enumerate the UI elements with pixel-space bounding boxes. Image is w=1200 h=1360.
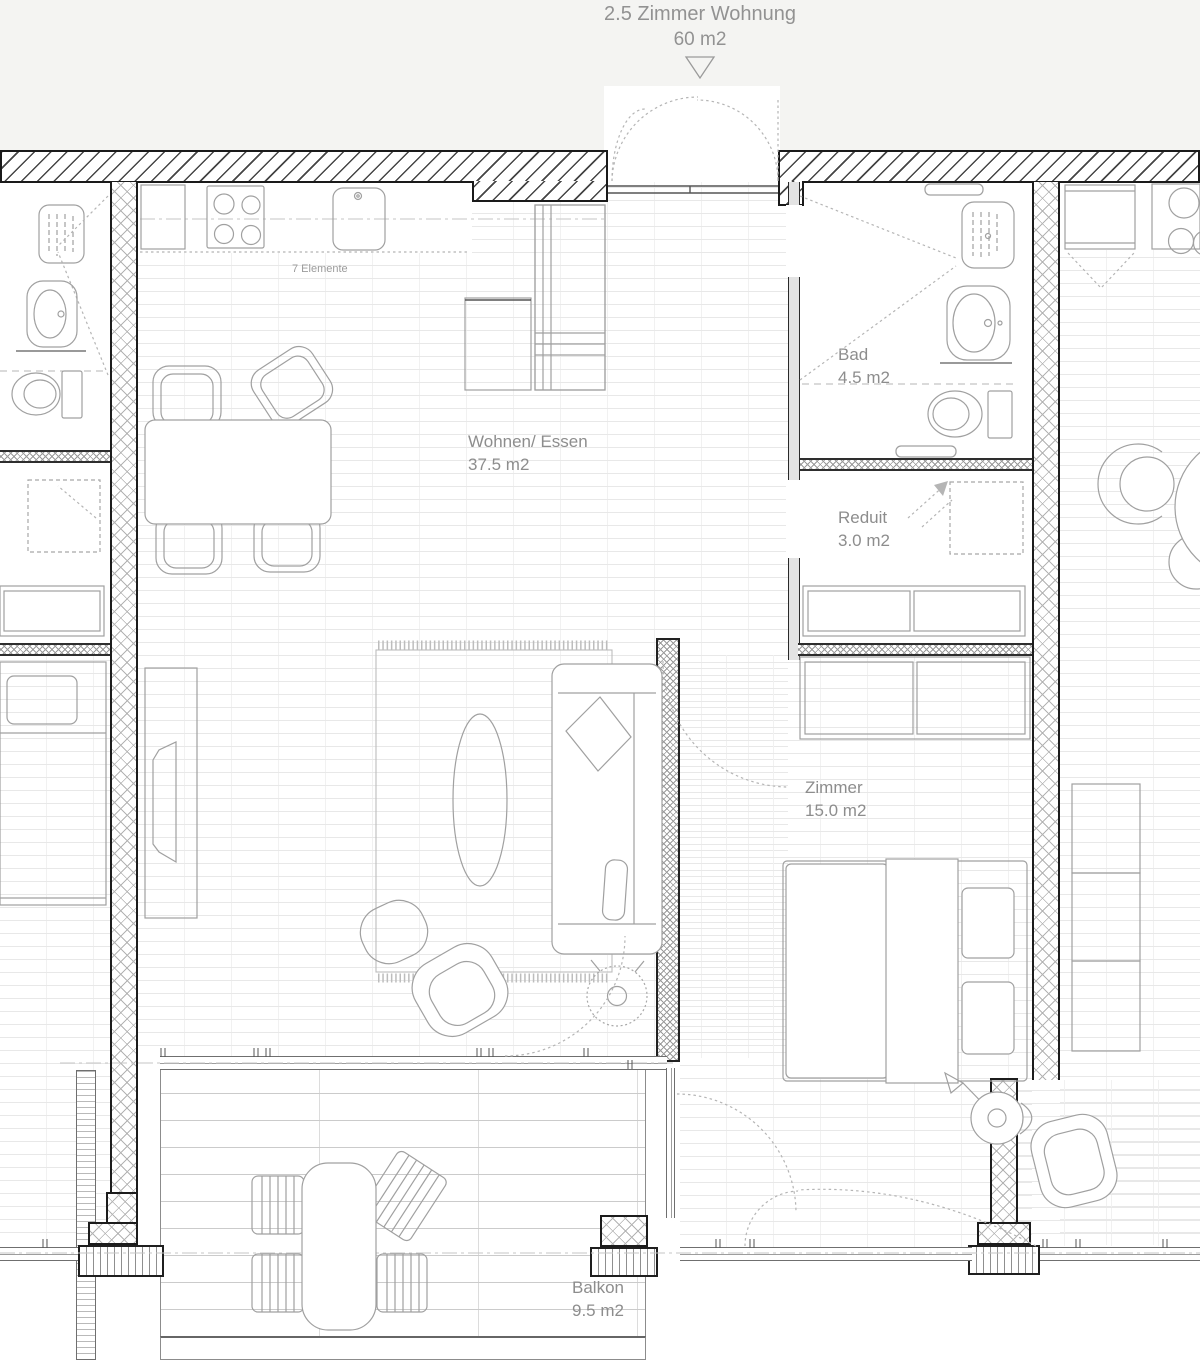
plan-subtitle: 60 m2: [450, 29, 950, 51]
toilet-icon: [928, 391, 1012, 438]
label-living-area: 37.5 m2: [468, 453, 588, 476]
label-balcony-name: Balkon: [528, 1276, 668, 1299]
washbasin-icon: [27, 281, 77, 347]
wall-pier-right-base: [977, 1222, 1031, 1245]
plan-title: 2.5 Zimmer Wohnung: [450, 3, 950, 26]
floor-plan: 2.5 Zimmer Wohnung 60 m2 7 Elemente Wohn…: [0, 0, 1200, 1360]
label-balcony-area: 9.5 m2: [528, 1299, 668, 1322]
door-gap-bath: [786, 205, 802, 277]
wardrobe: [0, 586, 104, 636]
sill-left: [78, 1245, 164, 1277]
shower-icon: [962, 202, 1014, 268]
wall-north-left-step: [472, 181, 608, 202]
wall-north-right: [778, 150, 1200, 183]
label-bedroom: Zimmer 15.0 m2: [805, 776, 866, 822]
wall-living-bedroom: [656, 638, 680, 1062]
label-bedroom-name: Zimmer: [805, 776, 866, 799]
wall-pier-balcony: [600, 1215, 648, 1247]
washbasin-icon: [947, 286, 1010, 360]
wardrobe-storage: [803, 586, 1025, 636]
wall-party-left: [110, 182, 138, 1194]
wall-left-apartment-1: [0, 450, 110, 463]
window-bedroom: [680, 1247, 972, 1261]
floor-bedroom: [680, 655, 1032, 1247]
wall-storage-south: [798, 643, 1032, 656]
kitchen-elements-note: 7 Elemente: [292, 263, 348, 275]
label-living: Wohnen/ Essen 37.5 m2: [468, 430, 588, 476]
bath-niche: [925, 184, 983, 195]
entrance-recess: [604, 86, 780, 150]
storage-room: [908, 481, 1023, 554]
label-bath-name: Bad: [838, 343, 890, 366]
window-balcony-doors: [160, 1056, 667, 1070]
balcony-fascia: [160, 1336, 646, 1360]
stove-icon: [1152, 184, 1200, 256]
kitchen-cabinet: [1065, 185, 1135, 249]
wall-pier-left-base: [88, 1222, 138, 1245]
wall-pier-left-top: [106, 1192, 138, 1224]
label-balcony: Balkon 9.5 m2: [528, 1276, 668, 1322]
door-arrow-icon: [934, 481, 948, 496]
sill-right: [968, 1245, 1040, 1275]
label-living-name: Wohnen/ Essen: [468, 430, 588, 453]
toilet-icon: [12, 371, 82, 418]
wall-north-left: [0, 150, 608, 183]
floor-kitchen-counter-strip: [138, 182, 472, 253]
door-gap-storage: [786, 480, 802, 558]
label-bedroom-area: 15.0 m2: [805, 799, 866, 822]
storage-outline: [28, 480, 100, 552]
bathroom: [800, 184, 1014, 457]
balcony-railing: [76, 1070, 96, 1360]
label-bath-area: 4.5 m2: [838, 366, 890, 389]
window-bedroom-west: [666, 1068, 675, 1218]
wall-party-right: [1032, 182, 1060, 1080]
shower-icon: [39, 205, 84, 263]
label-storage-name: Reduit: [838, 506, 890, 529]
wall-pier-right-low: [990, 1078, 1018, 1224]
sill-balcony-right: [590, 1247, 658, 1277]
label-bath: Bad 4.5 m2: [838, 343, 890, 389]
wall-left-apartment-2: [0, 643, 110, 656]
label-storage-area: 3.0 m2: [838, 529, 890, 552]
bath-mat: [896, 446, 956, 457]
window-right-apartment: [1040, 1247, 1200, 1261]
label-storage: Reduit 3.0 m2: [838, 506, 890, 552]
window-left-apartment: [0, 1247, 78, 1261]
wall-bath-south: [800, 458, 1032, 471]
floor-right-apartment-low: [1018, 1080, 1200, 1246]
